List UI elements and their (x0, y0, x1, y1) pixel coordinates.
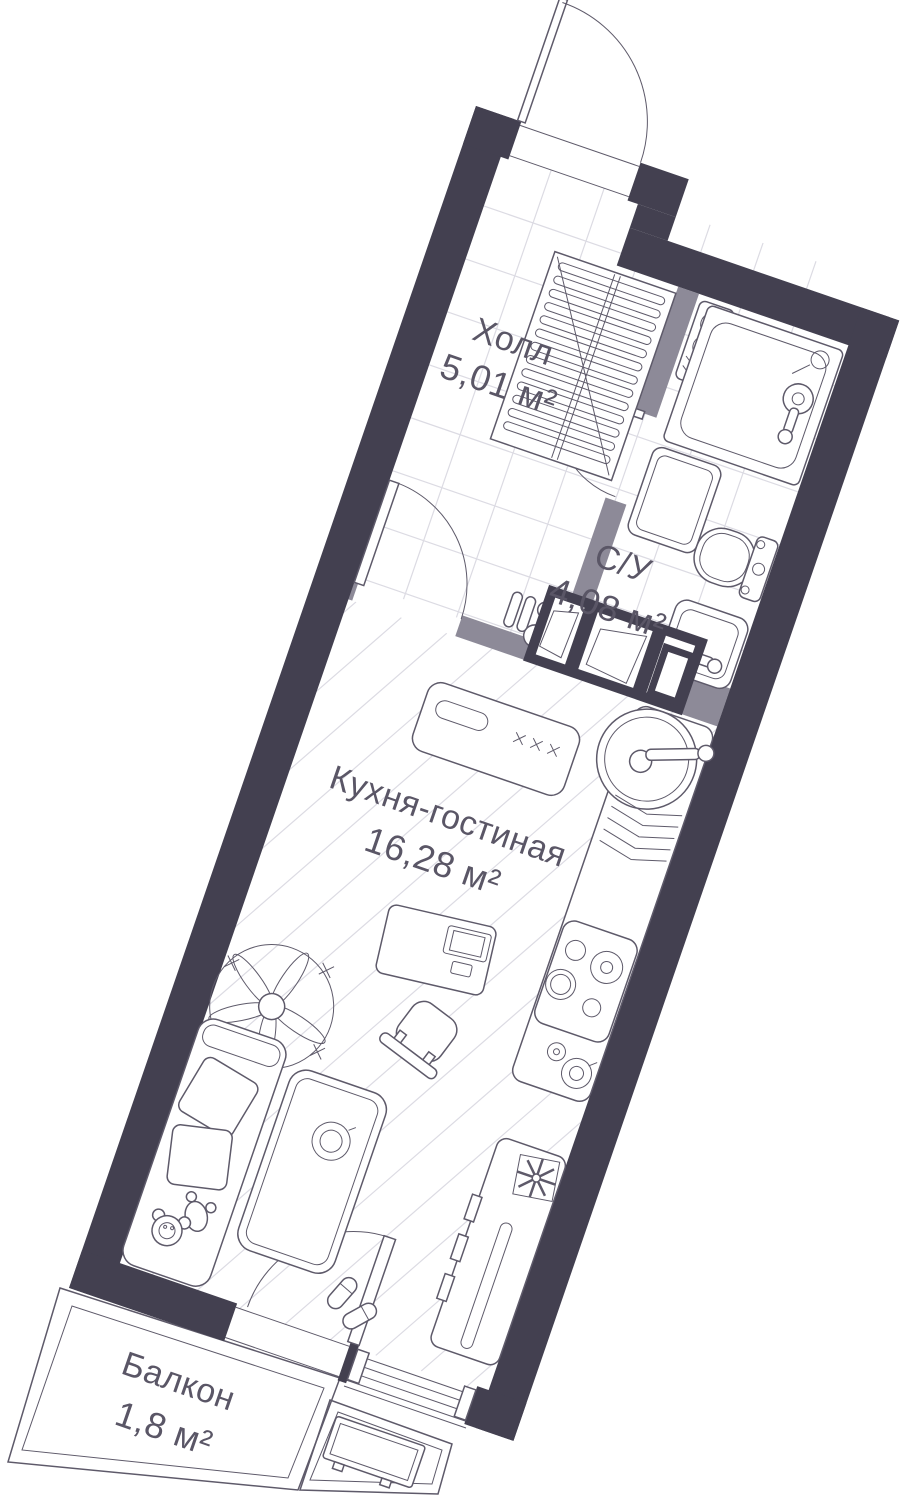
balcony-ac-unit (320, 1416, 425, 1495)
entry-door-leaf (518, 0, 568, 123)
floor-plan: Холл 5,01 м² С/У 4,08 м² Кухня-гостиная … (0, 0, 913, 1500)
kitchen-counter (409, 679, 584, 799)
entry-door (506, 0, 683, 197)
desk (375, 903, 498, 996)
floor-plan-page: Холл 5,01 м² С/У 4,08 м² Кухня-гостиная … (0, 0, 913, 1500)
coat-rack (490, 252, 675, 481)
balcony (8, 1288, 468, 1495)
building: Холл 5,01 м² С/У 4,08 м² Кухня-гостиная … (0, 0, 913, 1500)
entry-door-swing-arc (521, 2, 681, 162)
